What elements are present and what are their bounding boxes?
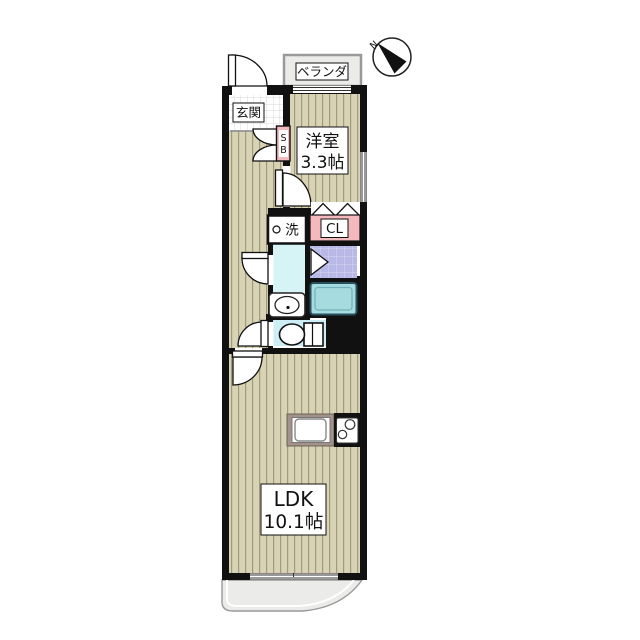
floor-plan-page: ベランダ: [0, 0, 640, 640]
compass-icon: N: [368, 38, 411, 76]
washbasin: [269, 293, 305, 317]
ldk-floor: [229, 354, 360, 573]
veranda-label: ベランダ: [297, 64, 347, 79]
entrance-label: 玄関: [236, 105, 261, 120]
washer-faucet-icon: [273, 226, 280, 233]
western-room-size: 3.3帖: [300, 153, 344, 173]
shoe-box-label-s: S: [280, 133, 286, 144]
ldk-balcony-window: [250, 574, 338, 580]
western-room-label-group: 洋室 3.3帖: [297, 127, 348, 174]
ldk-size: 10.1帖: [264, 512, 324, 533]
stove-burner-2: [338, 430, 346, 438]
western-room-top-window: [293, 86, 351, 94]
western-room-name: 洋室: [306, 132, 340, 152]
kitchen-sink: [295, 419, 326, 441]
shoe-box: S B: [277, 126, 291, 161]
shoe-box-label-b: B: [280, 145, 287, 156]
veranda-top: ベランダ: [284, 55, 361, 86]
toilet-tank: [304, 323, 323, 346]
ldk-name: LDK: [274, 487, 315, 511]
washer-space: 洗: [268, 216, 306, 244]
closet-accordion-doors: [311, 202, 360, 216]
washbasin-drain: [286, 306, 289, 309]
toilet-bowl: [280, 324, 305, 345]
toilet: [280, 323, 324, 346]
entrance-label-group: 玄関: [233, 103, 264, 122]
entrance-door: [229, 55, 268, 86]
bathtub: [311, 283, 357, 315]
kitchen-stove: [334, 413, 360, 447]
floor-plan-drawing: ベランダ: [0, 0, 640, 640]
washer-label: 洗: [285, 223, 299, 239]
balcony-bottom: [222, 580, 362, 611]
closet: CL: [310, 215, 360, 241]
washbasin-bowl: [275, 297, 299, 314]
stove-burner-1: [345, 420, 355, 430]
western-room-right-window: [361, 152, 367, 202]
ldk-label-group: LDK 10.1帖: [261, 484, 326, 535]
closet-label: CL: [326, 221, 343, 237]
kitchen-counter: [287, 413, 360, 447]
